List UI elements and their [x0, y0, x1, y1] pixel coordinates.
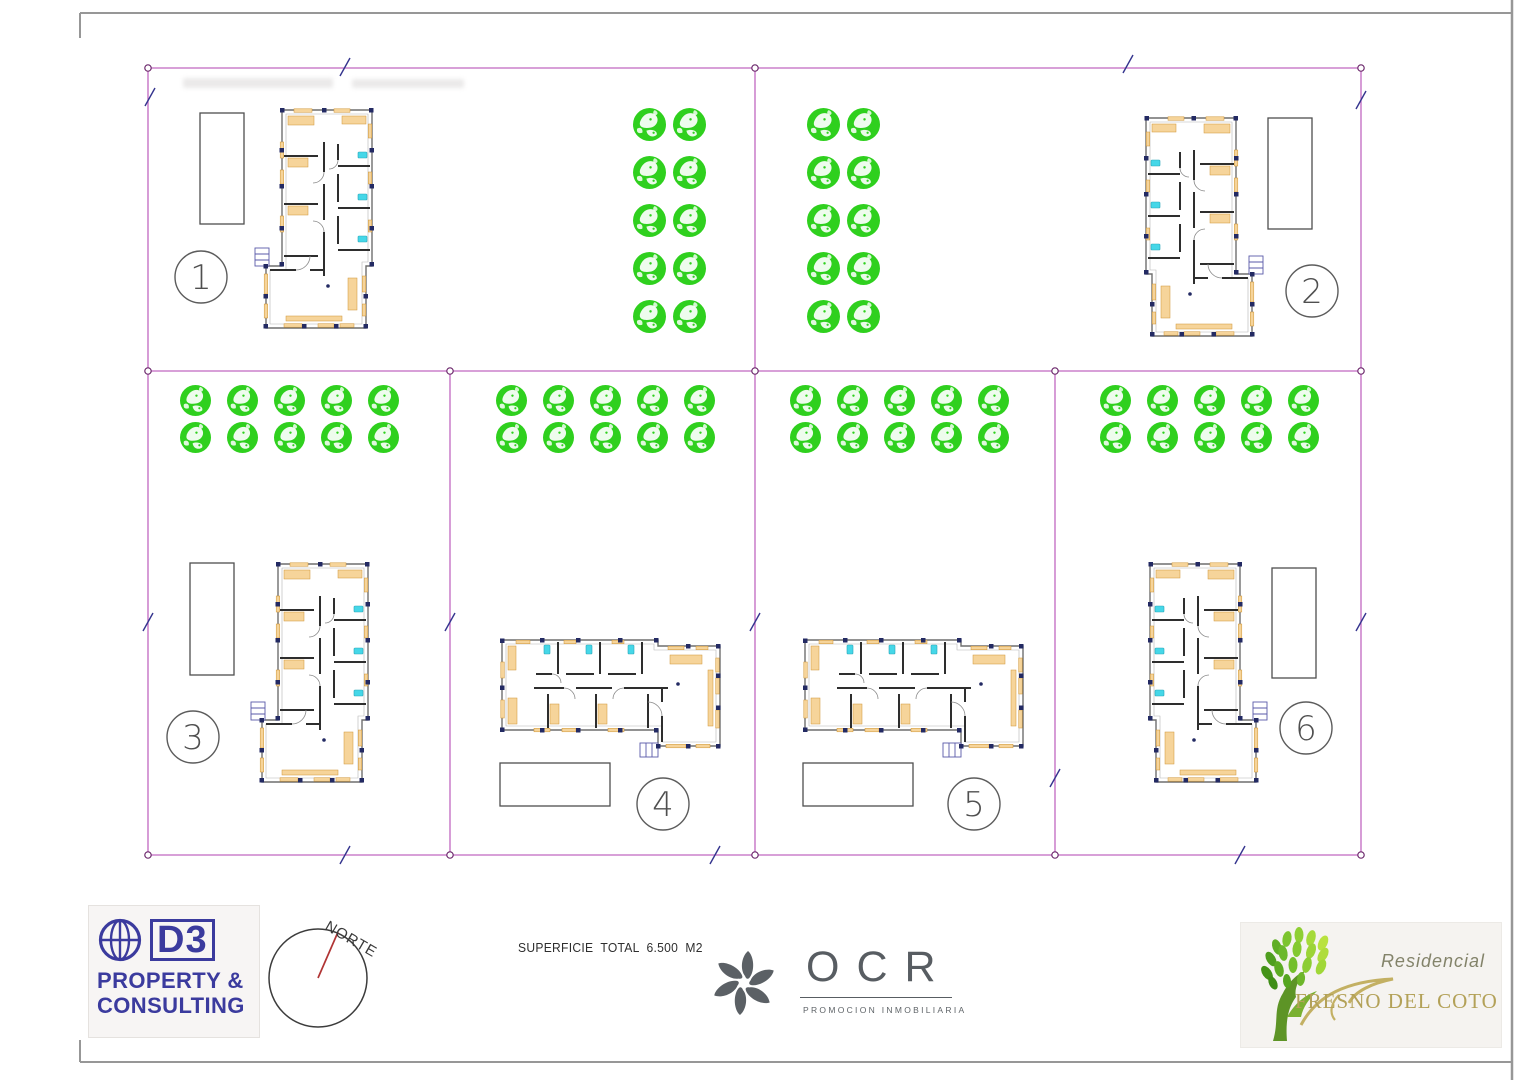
- tree-icon: [1147, 422, 1178, 453]
- d3-property-consulting-logo: D3 PROPERTY & CONSULTING: [88, 905, 260, 1038]
- plot-2: 2: [807, 108, 1338, 336]
- tree-icon: [633, 108, 666, 141]
- plot-number: 2: [1301, 272, 1323, 312]
- tree-icon: [837, 422, 868, 453]
- boundary-corner-marker: [447, 368, 453, 374]
- pool-rect: [1272, 568, 1316, 678]
- total-surface-note: SUPERFICIE TOTAL 6.500 M2: [518, 940, 703, 955]
- fresno-del-coto-logo: Residencial FRESNO DEL COTO: [1240, 922, 1502, 1048]
- tree-icon: [1147, 385, 1178, 416]
- tree-icon: [1194, 385, 1225, 416]
- tree-icon: [884, 385, 915, 416]
- plot-number: 4: [652, 785, 674, 825]
- boundary-corner-marker: [145, 368, 151, 374]
- house-floor-plan: [1148, 562, 1267, 783]
- tree-icon: [1241, 385, 1272, 416]
- boundary-corner-marker: [752, 852, 758, 858]
- tree-icon: [633, 252, 666, 285]
- survey-tick: [340, 58, 350, 76]
- tree-icon: [368, 422, 399, 453]
- d3-logo-line2: CONSULTING: [97, 993, 251, 1018]
- tree-icon: [931, 385, 962, 416]
- tree-icon: [807, 252, 840, 285]
- tree-icon: [673, 108, 706, 141]
- north-compass: NORTE: [262, 905, 397, 1040]
- pool-rect: [190, 563, 234, 675]
- pool-rect: [500, 763, 610, 806]
- tree-icon: [807, 156, 840, 189]
- ocr-logo-name: OCR: [806, 943, 953, 992]
- ocr-flower-icon: [690, 925, 798, 1037]
- tree-icon: [978, 385, 1009, 416]
- tree-icon: [274, 385, 305, 416]
- boundary-corner-marker: [447, 852, 453, 858]
- tree-icon: [321, 422, 352, 453]
- house-floor-plan: [1144, 116, 1263, 337]
- tree-icon: [1100, 385, 1131, 416]
- house-floor-plan: [255, 108, 374, 329]
- fresno-tree-icon: [1243, 925, 1501, 1047]
- tree-icon: [1288, 385, 1319, 416]
- tree-icon: [180, 385, 211, 416]
- tree-icon: [978, 422, 1009, 453]
- survey-tick: [1123, 55, 1133, 73]
- boundary-corner-marker: [752, 65, 758, 71]
- tree-icon: [637, 385, 668, 416]
- house-floor-plan: [500, 638, 721, 757]
- tree-icon: [837, 385, 868, 416]
- plot-number: 6: [1295, 709, 1317, 749]
- tree-icon: [807, 204, 840, 237]
- tree-icon: [543, 422, 574, 453]
- tree-icon: [180, 422, 211, 453]
- house-floor-plan: [251, 562, 370, 783]
- tree-icon: [633, 204, 666, 237]
- tree-icon: [673, 300, 706, 333]
- tree-icon: [590, 385, 621, 416]
- tree-icon: [1241, 422, 1272, 453]
- plot-4: 4: [496, 385, 721, 830]
- tree-icon: [496, 422, 527, 453]
- compass-north-label: NORTE: [322, 918, 380, 961]
- pool-rect: [1268, 118, 1312, 229]
- boundary-corner-marker: [145, 852, 151, 858]
- tree-icon: [684, 385, 715, 416]
- house-floor-plan: [803, 638, 1024, 757]
- plot-number: 3: [182, 718, 204, 758]
- tree-icon: [684, 422, 715, 453]
- boundary-corner-marker: [1358, 852, 1364, 858]
- plot-5: 5: [790, 385, 1024, 830]
- boundary-corner-marker: [1052, 368, 1058, 374]
- d3-monogram: D3: [150, 919, 215, 961]
- tree-icon: [368, 385, 399, 416]
- tree-icon: [807, 108, 840, 141]
- boundary-corner-marker: [145, 65, 151, 71]
- pool-rect: [200, 113, 244, 224]
- boundary-corner-marker: [1358, 65, 1364, 71]
- ocr-promocion-logo: OCR PROMOCION INMOBILIARIA: [690, 925, 1160, 1037]
- site-plan-sheet: 123456 D3 PROPERTY & CONSULTING NORTE SU…: [0, 0, 1527, 1080]
- tree-icon: [496, 385, 527, 416]
- tree-icon: [274, 422, 305, 453]
- tree-icon: [884, 422, 915, 453]
- tree-icon: [227, 422, 258, 453]
- tree-icon: [673, 156, 706, 189]
- fresno-logo-name: FRESNO DEL COTO: [1295, 989, 1498, 1014]
- tree-icon: [1194, 422, 1225, 453]
- pool-rect: [803, 763, 913, 806]
- tree-icon: [847, 108, 880, 141]
- tree-icon: [847, 156, 880, 189]
- tree-icon: [1288, 422, 1319, 453]
- ocr-logo-subtitle: PROMOCION INMOBILIARIA: [803, 1005, 966, 1015]
- d3-globe-icon: [97, 917, 143, 963]
- boundary-corner-marker: [1052, 852, 1058, 858]
- fresno-logo-residencial: Residencial: [1381, 951, 1485, 972]
- plot-number: 5: [963, 785, 985, 825]
- tree-icon: [847, 300, 880, 333]
- d3-logo-line1: PROPERTY &: [97, 968, 251, 993]
- tree-icon: [1100, 422, 1131, 453]
- boundary-corner-marker: [1358, 368, 1364, 374]
- tree-icon: [673, 252, 706, 285]
- survey-tick: [145, 88, 155, 106]
- tree-icon: [673, 204, 706, 237]
- tree-icon: [633, 300, 666, 333]
- tree-icon: [790, 385, 821, 416]
- tree-icon: [321, 385, 352, 416]
- tree-icon: [847, 204, 880, 237]
- tree-icon: [847, 252, 880, 285]
- plot-1: 1: [175, 108, 706, 333]
- ocr-logo-rule: [800, 997, 952, 998]
- tree-icon: [543, 385, 574, 416]
- tree-icon: [633, 156, 666, 189]
- tree-icon: [590, 422, 621, 453]
- tree-icon: [790, 422, 821, 453]
- plot-6: 6: [1100, 385, 1332, 783]
- tree-icon: [807, 300, 840, 333]
- boundary-corner-marker: [752, 368, 758, 374]
- tree-icon: [931, 422, 962, 453]
- tree-icon: [227, 385, 258, 416]
- plot-number: 1: [190, 258, 212, 298]
- plot-3: 3: [167, 385, 399, 783]
- tree-icon: [637, 422, 668, 453]
